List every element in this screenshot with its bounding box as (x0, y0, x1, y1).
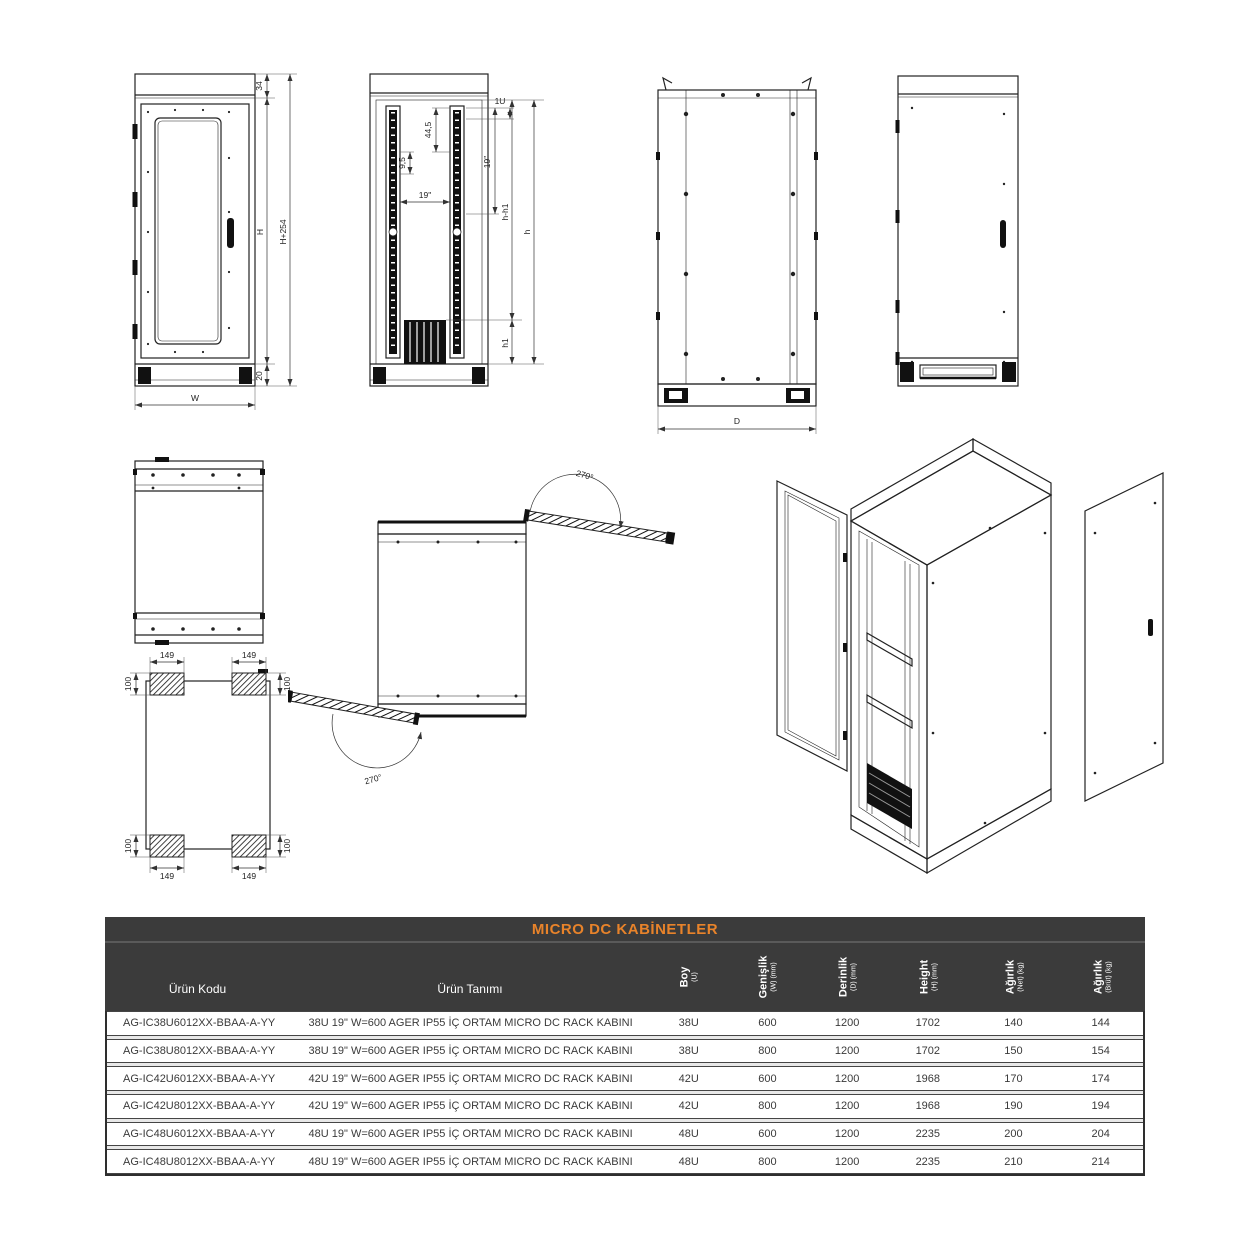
cell-net: 170 (969, 1067, 1059, 1090)
front-door-open (288, 689, 420, 725)
dim-label-h1: h1 (500, 338, 510, 348)
cell-brut: 194 (1058, 1095, 1143, 1118)
dim-label-19-vertical: 19" (482, 156, 492, 168)
dim-label-100: 100 (123, 839, 133, 853)
cell-desc: 48U 19" W=600 AGER IP55 İÇ ORTAM MICRO D… (291, 1123, 650, 1146)
base-outline (146, 681, 270, 849)
dim-label-top-frame: 34 (254, 81, 264, 91)
door-handle (227, 218, 234, 248)
col-header-agirlik-net-sub: (Net) (kg) (1017, 962, 1025, 992)
dim-label-width: W (191, 393, 199, 403)
cell-boy: 42U (650, 1095, 728, 1118)
dim-label-h-minus-h1: h-h1 (500, 203, 510, 220)
cell-net: 210 (969, 1150, 1059, 1173)
cell-height: 1702 (887, 1040, 969, 1063)
col-header-agirlik-brut-label: Ağırlık (1092, 960, 1105, 994)
dim-label-149: 149 (242, 650, 256, 660)
dim-label-445: 44,5 (423, 121, 433, 138)
cell-desc: 48U 19" W=600 AGER IP55 İÇ ORTAM MICRO D… (291, 1150, 650, 1173)
rear-door-handle (1000, 220, 1006, 248)
col-header-genislik-label: Genişlik (758, 956, 771, 999)
cell-genislik: 600 (728, 1067, 808, 1090)
table-row: AG-IC48U6012XX-BBAA-A-YY 48U 19" W=600 A… (107, 1122, 1143, 1147)
dim-label-149: 149 (242, 871, 256, 881)
base-view-drawing: 149 149 100 100 149 149 100 100 (112, 645, 302, 883)
cell-boy: 38U (650, 1040, 728, 1063)
lifting-lug (663, 78, 672, 90)
col-header-boy: Boy(U) (650, 943, 728, 1011)
top-view-bolts (133, 469, 265, 631)
table-title-text: MICRO DC KABİNETLER (532, 921, 718, 938)
rack-open-view-drawing: 1U 44,5 19" 9,5 19" h-h1 h1 h (362, 62, 567, 424)
cell-brut: 154 (1058, 1040, 1143, 1063)
dim-label-149: 149 (160, 871, 174, 881)
rear-screws (911, 107, 1005, 363)
cell-genislik: 800 (728, 1095, 808, 1118)
table-row: AG-IC42U8012XX-BBAA-A-YY 42U 19" W=600 A… (107, 1094, 1143, 1119)
side-view-dimensions: D (658, 406, 816, 434)
cell-net: 150 (969, 1040, 1059, 1063)
cell-height: 1702 (887, 1012, 969, 1035)
door-window (155, 118, 221, 344)
table-header-row: Ürün Kodu Ürün Tanımı Boy(U) Genişlik(W)… (105, 943, 1145, 1011)
rear-door-open-iso (1085, 473, 1163, 801)
side-panel-bolts (656, 93, 818, 381)
door-handle (1148, 619, 1153, 636)
cell-genislik: 600 (728, 1123, 808, 1146)
cell-boy: 48U (650, 1123, 728, 1146)
front-cabinet-outline (135, 74, 255, 386)
roof-rim (851, 439, 973, 521)
dim-label-95: 9,5 (397, 157, 407, 169)
cell-brut: 174 (1058, 1067, 1143, 1090)
cell-height: 1968 (887, 1095, 969, 1118)
top-tab (155, 457, 169, 462)
spec-table: MICRO DC KABİNETLER Ürün Kodu Ürün Tanım… (105, 917, 1145, 1176)
col-header-urun-kodu: Ürün Kodu (105, 943, 290, 1011)
side-view-drawing: D (638, 62, 843, 440)
door-swing-drawing: 270° 270° (288, 452, 678, 792)
col-header-genislik-sub: (W) (mm) (770, 962, 778, 992)
bottom-vent-panel (404, 320, 446, 364)
col-header-boy-sub: (U) (691, 972, 699, 982)
door-screws (147, 109, 230, 353)
dim-label-1u: 1U (495, 96, 506, 106)
cell-code: AG-IC38U6012XX-BBAA-A-YY (107, 1012, 291, 1035)
rear-door-open (523, 509, 675, 545)
cell-code: AG-IC42U8012XX-BBAA-A-YY (107, 1095, 291, 1118)
foot (239, 367, 252, 384)
isometric-view-drawing (755, 433, 1170, 881)
col-header-genislik: Genişlik(W) (mm) (728, 943, 808, 1011)
table-row: AG-IC42U6012XX-BBAA-A-YY 42U 19" W=600 A… (107, 1066, 1143, 1091)
front-view-drawing: 34 H 20 H+254 W (125, 62, 350, 424)
foot (138, 367, 151, 384)
cell-boy: 48U (650, 1150, 728, 1173)
cabinet-top-outline (378, 522, 526, 716)
cell-net: 190 (969, 1095, 1059, 1118)
col-header-derinlik-sub: (D) (mm) (850, 963, 858, 991)
plinth-iso (927, 789, 1051, 873)
top-view-outline (135, 457, 263, 645)
col-header-derinlik-label: Derinlik (838, 957, 851, 997)
cell-derinlik: 1200 (807, 1067, 887, 1090)
lifting-lug (802, 78, 811, 90)
side-panel-outline (658, 78, 816, 384)
cell-boy: 38U (650, 1012, 728, 1035)
col-header-height: Height(H) (mm) (888, 943, 970, 1011)
col-header-derinlik: Derinlik(D) (mm) (808, 943, 888, 1011)
dim-label-total-height: H+254 (278, 219, 288, 245)
front-view-dimensions: 34 H 20 H+254 W (135, 74, 297, 410)
cell-code: AG-IC42U6012XX-BBAA-A-YY (107, 1067, 291, 1090)
cell-height: 2235 (887, 1123, 969, 1146)
table-row: AG-IC48U8012XX-BBAA-A-YY 48U 19" W=600 A… (107, 1149, 1143, 1174)
cell-brut: 204 (1058, 1123, 1143, 1146)
cell-genislik: 800 (728, 1040, 808, 1063)
table-body: AG-IC38U6012XX-BBAA-A-YY 38U 19" W=600 A… (105, 1011, 1145, 1176)
cell-net: 140 (969, 1012, 1059, 1035)
cell-derinlik: 1200 (807, 1150, 887, 1173)
dim-label-body-height: H (255, 229, 265, 235)
cell-genislik: 800 (728, 1150, 808, 1173)
table-row: AG-IC38U6012XX-BBAA-A-YY 38U 19" W=600 A… (107, 1011, 1143, 1036)
cell-derinlik: 1200 (807, 1095, 887, 1118)
cell-brut: 144 (1058, 1012, 1143, 1035)
plinth-iso (851, 815, 927, 873)
table-title: MICRO DC KABİNETLER (105, 917, 1145, 943)
cell-boy: 42U (650, 1067, 728, 1090)
cell-code: AG-IC38U8012XX-BBAA-A-YY (107, 1040, 291, 1063)
top-view-drawing (125, 445, 275, 657)
cell-desc: 42U 19" W=600 AGER IP55 İÇ ORTAM MICRO D… (291, 1095, 650, 1118)
base-view-dimensions: 149 149 100 100 149 149 100 100 (123, 650, 292, 881)
dim-label-100: 100 (282, 839, 292, 853)
rack-rail-left (386, 106, 400, 358)
cell-code: AG-IC48U6012XX-BBAA-A-YY (107, 1123, 291, 1146)
col-header-urun-tanimi: Ürün Tanımı (290, 943, 650, 1011)
dim-label-100: 100 (123, 677, 133, 691)
base-feet (150, 669, 268, 857)
roof-rim (973, 439, 1051, 495)
col-header-height-label: Height (919, 960, 932, 994)
dim-label-149: 149 (160, 650, 174, 660)
cell-genislik: 600 (728, 1012, 808, 1035)
cabinet-body-iso (851, 439, 1051, 873)
cell-height: 1968 (887, 1067, 969, 1090)
cell-brut: 214 (1058, 1150, 1143, 1173)
cell-derinlik: 1200 (807, 1012, 887, 1035)
catalog-page: { "drawings": { "front_view": { "dim_top… (0, 0, 1250, 1250)
side-plinth (658, 384, 816, 406)
cell-code: AG-IC48U8012XX-BBAA-A-YY (107, 1150, 291, 1173)
cell-desc: 38U 19" W=600 AGER IP55 İÇ ORTAM MICRO D… (291, 1012, 650, 1035)
dim-label-h: h (522, 229, 532, 234)
cell-desc: 42U 19" W=600 AGER IP55 İÇ ORTAM MICRO D… (291, 1067, 650, 1090)
rear-plinth (900, 362, 1016, 382)
front-door-open-iso (777, 481, 847, 771)
dim-label-plinth-height: 20 (254, 371, 264, 381)
table-row: AG-IC38U8012XX-BBAA-A-YY 38U 19" W=600 A… (107, 1039, 1143, 1064)
cell-derinlik: 1200 (807, 1040, 887, 1063)
col-header-agirlik-brut-sub: (Brüt) (kg) (1105, 961, 1113, 993)
cell-desc: 38U 19" W=600 AGER IP55 İÇ ORTAM MICRO D… (291, 1040, 650, 1063)
cell-height: 2235 (887, 1150, 969, 1173)
col-header-agirlik-net-label: Ağırlık (1005, 960, 1018, 994)
col-header-agirlik-net: Ağırlık(Net) (kg) (970, 943, 1060, 1011)
cell-net: 200 (969, 1123, 1059, 1146)
col-header-height-sub: (H) (mm) (931, 963, 939, 991)
dim-label-front-angle: 270° (363, 772, 383, 786)
dim-label-depth: D (734, 416, 740, 426)
col-header-agirlik-brut: Ağırlık(Brüt) (kg) (1060, 943, 1145, 1011)
dim-label-rear-angle: 270° (575, 468, 595, 482)
col-header-boy-label: Boy (679, 967, 692, 988)
dim-label-19-horizontal: 19" (419, 190, 431, 200)
rear-view-drawing (888, 62, 1033, 414)
cell-derinlik: 1200 (807, 1123, 887, 1146)
